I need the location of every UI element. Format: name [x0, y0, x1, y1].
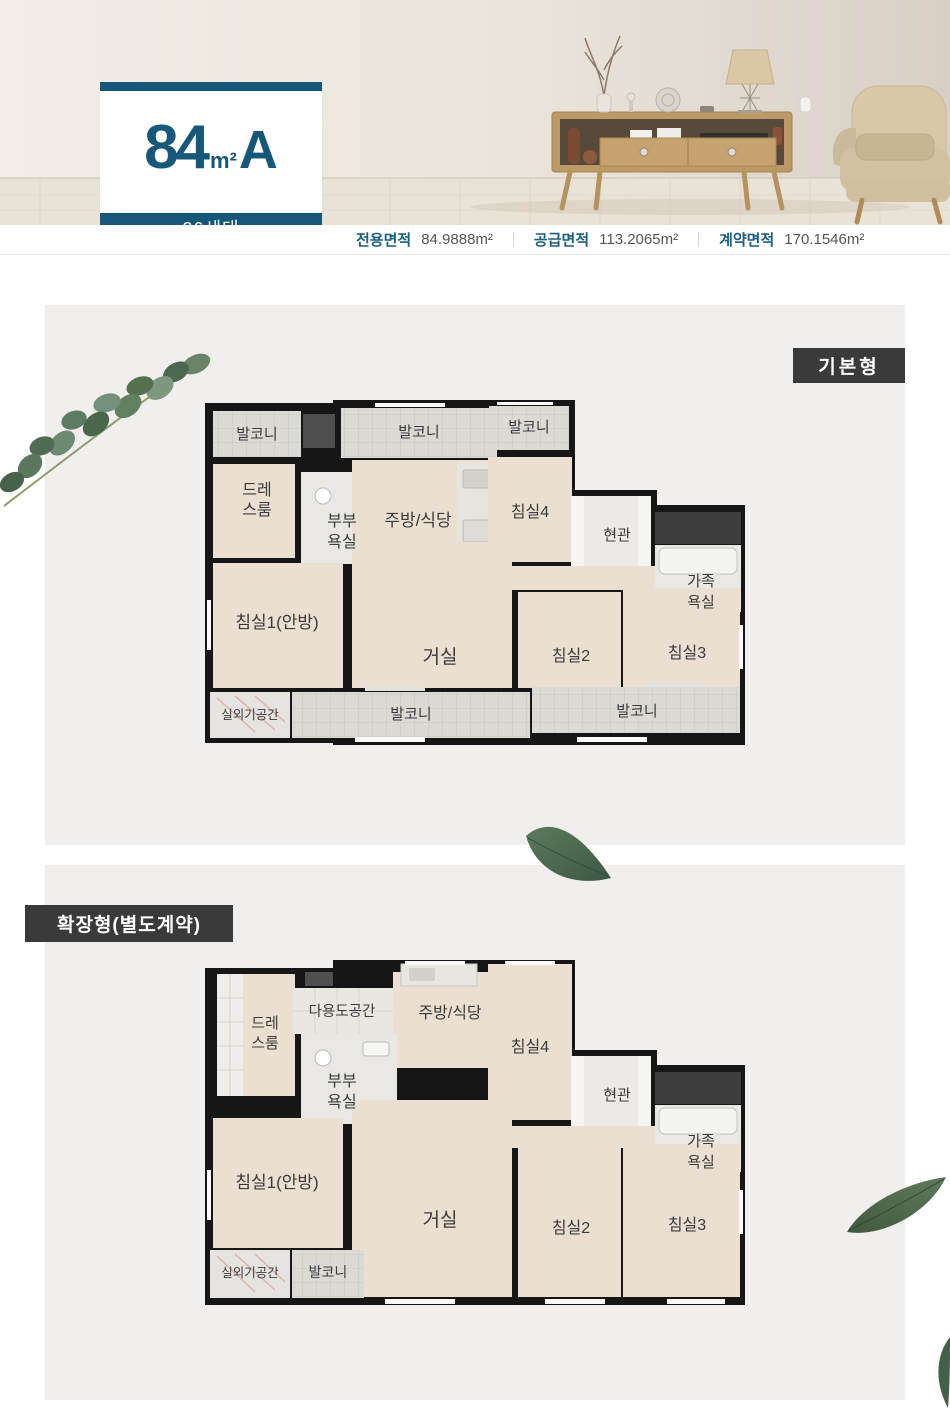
card-top-accent [100, 82, 322, 91]
supply-area-value: 113.2065m² [599, 231, 678, 248]
extended-plan-badge: 확장형(별도계약) [25, 905, 233, 942]
label-balcony-tr: 발코니 [508, 419, 549, 436]
exclusive-area-value: 84.9888m² [421, 231, 493, 248]
label-family-bath-1: 가족 [687, 1133, 715, 1150]
label-outdoor-unit: 실외기공간 [221, 1266, 279, 1280]
label-family-bath-2: 욕실 [687, 594, 715, 611]
label-bedroom1: 침실1(안방) [235, 613, 318, 632]
divider [698, 232, 699, 247]
label-dress-2: 스룸 [251, 1035, 279, 1052]
basic-plan-badge: 기본형 [793, 348, 905, 383]
label-dress-1: 드레 [251, 1015, 279, 1032]
unit-sqm: m² [210, 148, 237, 174]
area-info-bar: 전용면적 84.9888m² 공급면적 113.2065m² 계약면적 170.… [0, 225, 950, 255]
label-balcony-tc: 발코니 [398, 424, 439, 441]
unit-type-title: 84m²A [100, 91, 322, 213]
exclusive-area-label: 전용면적 [356, 229, 411, 250]
label-multipurpose: 다용도공간 [309, 1003, 376, 1020]
supply-area-label: 공급면적 [534, 229, 589, 250]
divider [513, 232, 514, 247]
label-balcony-small: 발코니 [309, 1264, 348, 1280]
label-entrance: 현관 [603, 1087, 631, 1104]
label-dress-2: 스룸 [242, 501, 271, 519]
label-living: 거실 [423, 1209, 458, 1231]
contract-area-value: 170.1546m² [784, 231, 864, 248]
contract-area: 계약면적 170.1546m² [719, 229, 864, 250]
label-balcony-br: 발코니 [616, 703, 657, 720]
floorplan-basic: 발코니 발코니 발코니 드레 스룸 부부 욕실 주방/식당 침실4 현관 가족 … [205, 400, 745, 745]
eucalyptus-branch-decoration [0, 348, 215, 516]
label-bedroom1: 침실1(안방) [235, 1173, 318, 1192]
leaf-decoration-right [843, 1172, 950, 1242]
unit-type-letter: A [239, 123, 278, 177]
exclusive-area: 전용면적 84.9888m² [356, 229, 493, 250]
room-bedroom2 [518, 592, 621, 688]
label-couple-bath-1: 부부 [327, 513, 356, 530]
utility-shaft [303, 414, 335, 448]
label-outdoor-unit: 실외기공간 [221, 708, 279, 722]
label-couple-bath-2: 욕실 [327, 533, 356, 551]
page: { "unit": { "number": "84", "unit": "m²"… [0, 0, 950, 1410]
label-couple-bath-2: 욕실 [327, 1093, 356, 1111]
room-bedroom3 [623, 588, 740, 688]
label-bedroom2: 침실2 [552, 647, 590, 665]
label-bedroom2: 침실2 [552, 1219, 590, 1237]
label-bedroom3: 침실3 [668, 1216, 706, 1234]
label-bedroom3: 침실3 [668, 644, 706, 662]
unit-type-card: 84m²A 26세대 [100, 82, 322, 243]
label-kitchen: 주방/식당 [418, 1004, 482, 1022]
label-couple-bath-1: 부부 [327, 1073, 356, 1090]
label-balcony-tl: 발코니 [236, 426, 277, 443]
label-entrance: 현관 [603, 527, 631, 544]
label-dress-1: 드레 [242, 481, 271, 499]
label-family-bath-2: 욕실 [687, 1154, 715, 1171]
round-plate [656, 88, 680, 112]
floorplan-extended: 드레 스룸 다용도공간 주방/식당 부부 욕실 침실4 현관 가족 욕실 침실1… [205, 960, 745, 1305]
utility-shaft [305, 972, 333, 986]
label-bedroom4: 침실4 [511, 503, 549, 521]
unit-number: 84 [144, 117, 207, 179]
label-kitchen: 주방/식당 [384, 511, 452, 530]
label-living: 거실 [423, 646, 458, 668]
supply-area: 공급면적 113.2065m² [534, 229, 678, 250]
label-balcony-bc: 발코니 [390, 706, 431, 723]
contract-area-label: 계약면적 [719, 229, 774, 250]
leaf-decoration-middle [518, 816, 618, 894]
label-bedroom4: 침실4 [511, 1038, 549, 1056]
leaf-decoration-corner [933, 1335, 950, 1410]
label-family-bath-1: 가족 [687, 573, 715, 590]
